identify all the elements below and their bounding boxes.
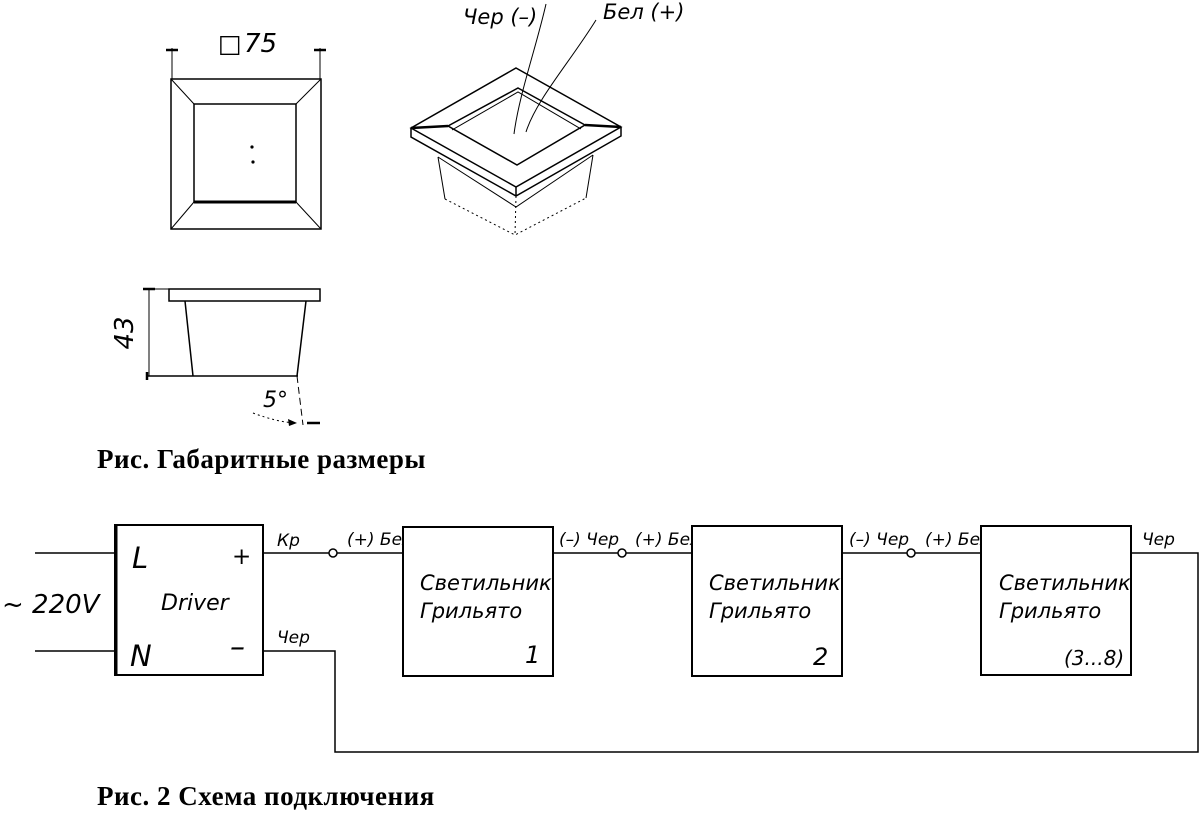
- height-dimension: 43: [110, 289, 169, 380]
- iso-body: [411, 68, 621, 235]
- side-view-angle-value: 5°: [263, 388, 288, 413]
- black-wire-callout: Чер (–): [463, 5, 537, 29]
- figure2-caption: Рис. 2 Схема подключения: [97, 781, 435, 812]
- mains-voltage-label: ~ 220V: [2, 590, 102, 620]
- side-view-height-value: 43: [110, 316, 140, 349]
- connector-node-1: [329, 549, 337, 557]
- center-dot-2: [251, 160, 254, 163]
- flange-profile: [169, 289, 320, 301]
- wire-2-label-cher: (–) Чер: [559, 530, 619, 550]
- driver-terminal-n: N: [130, 639, 152, 673]
- flange-inner-opening: [448, 88, 585, 165]
- luminaire-2-title-line1: Светильник: [709, 571, 841, 595]
- square-dimension-symbol: □: [218, 29, 242, 58]
- side-view-drawing: 43 5°: [100, 260, 340, 440]
- wire-1-label-kr: Кр: [277, 531, 300, 551]
- recess-bevel-edge: [452, 92, 581, 130]
- angle-dashed-line: [297, 376, 303, 425]
- luminaire-block-2: Светильник Грильято 2: [692, 526, 842, 676]
- luminaire-1-index: 1: [525, 641, 540, 669]
- white-wire-callout: Бел (+): [603, 0, 684, 24]
- driver-terminal-plus: +: [232, 544, 251, 570]
- leader-line-white: [526, 20, 596, 132]
- wire-segment-3: (–) Чер (+) Бел: [842, 530, 991, 557]
- luminaire-1-title-line2: Грильято: [420, 599, 522, 623]
- wire-3-label-cher: (–) Чер: [849, 530, 909, 550]
- body-shoulder: [438, 155, 593, 207]
- tail-wire-label: Чер: [1142, 530, 1175, 550]
- luminaire-3-title-line1: Светильник: [999, 571, 1131, 595]
- luminaire-2-title-line2: Грильято: [709, 599, 811, 623]
- luminaire-3-index: (3...8): [1064, 646, 1124, 670]
- top-view-width-value: 75: [244, 29, 277, 59]
- connector-node-2: [618, 549, 626, 557]
- driver-block: L N Driver + –: [115, 525, 263, 675]
- figure1-caption: Рис. Габаритные размеры: [97, 444, 426, 475]
- luminaire-1-title-line1: Светильник: [420, 571, 552, 595]
- luminaire-2-index: 2: [813, 643, 828, 671]
- center-dot-1: [250, 145, 253, 148]
- luminaire-block-3: Светильник Грильято (3...8): [981, 526, 1131, 675]
- body-taper-sides: [185, 301, 306, 376]
- wiring-schematic: ~ 220V L N Driver + – Кр (+) Бел Светиль…: [0, 505, 1200, 780]
- top-view-dimension: □ 75: [166, 29, 326, 79]
- connector-node-3: [907, 549, 915, 557]
- driver-terminal-l: L: [132, 541, 148, 575]
- driver-title: Driver: [161, 591, 231, 616]
- side-view-body: [146, 289, 320, 376]
- flange-seam-lines: [411, 125, 621, 128]
- technical-drawing-page: □ 75 Чер (–) Бел (+): [0, 0, 1200, 816]
- luminaire-3-title-line2: Грильято: [999, 599, 1101, 623]
- top-view-body: [171, 79, 321, 229]
- body-hidden-edges: [445, 196, 586, 235]
- wire-segment-1: Кр (+) Бел: [263, 530, 413, 557]
- angle-arrowhead: [288, 419, 297, 426]
- angle-dimension: 5°: [253, 376, 320, 426]
- luminaire-block-1: Светильник Грильято 1: [403, 527, 553, 676]
- iso-callouts: Чер (–) Бел (+): [463, 0, 684, 134]
- isometric-view-drawing: Чер (–) Бел (+): [400, 0, 690, 250]
- driver-minus-wire-label: Чер: [277, 628, 310, 648]
- wire-segment-2: (–) Чер (+) Бел: [553, 530, 701, 557]
- driver-terminal-minus: –: [230, 630, 245, 665]
- inner-square: [194, 104, 296, 202]
- top-view-drawing: □ 75: [140, 10, 360, 250]
